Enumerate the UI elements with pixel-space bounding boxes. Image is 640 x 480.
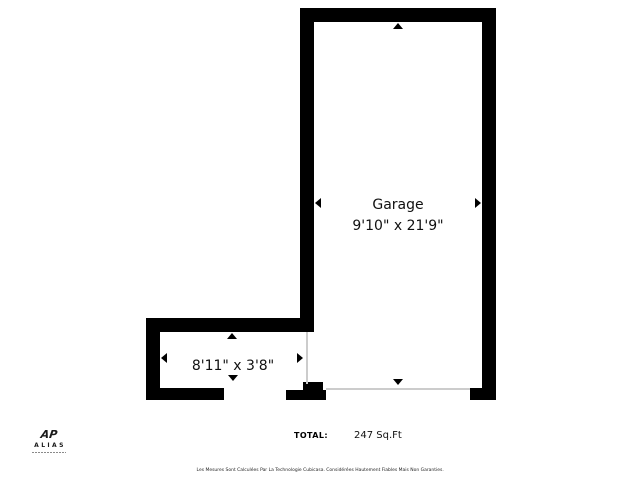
garage-top-wall — [300, 8, 496, 22]
garage-left-wall — [300, 8, 314, 332]
garage-bottom-right-stub-wall — [470, 388, 496, 400]
disclaimer-wrap: Les Mesures Sont Calculées Par La Techno… — [0, 458, 640, 477]
side-room-label-block: 8'11" x 3'8" — [160, 356, 306, 377]
garage-room-dimensions: 9'10" x 21'9" — [300, 216, 496, 237]
garage-door-opening-line — [326, 388, 470, 390]
garage-label-block: Garage 9'10" x 21'9" — [300, 195, 496, 237]
brand-monogram: AP — [28, 429, 70, 441]
brand-name: ALIAS — [29, 442, 69, 450]
garage-dim-arrow-up-icon — [393, 23, 403, 29]
garage-room-name: Garage — [300, 195, 496, 216]
side-room-bottom-wall — [146, 388, 224, 400]
total-row: TOTAL: 247 Sq.Ft — [294, 430, 402, 441]
brand-tagline-line — [32, 452, 66, 453]
side-room-top-wall — [146, 318, 314, 332]
total-value: 247 Sq.Ft — [354, 430, 402, 441]
floorplan-canvas: Garage 9'10" x 21'9" 8'11" x 3'8" TOTAL:… — [0, 0, 640, 480]
disclaimer-text: Les Mesures Sont Calculées Par La Techno… — [196, 467, 443, 472]
total-label: TOTAL: — [294, 431, 328, 440]
brand-logo: AP ALIAS — [29, 429, 69, 453]
side-room-dim-arrow-up-icon — [227, 333, 237, 339]
garage-bottom-left-notch-wall — [303, 382, 323, 400]
side-room-dimensions: 8'11" x 3'8" — [160, 356, 306, 377]
garage-dim-arrow-down-icon — [393, 379, 403, 385]
room-garage-boundary-line — [306, 332, 308, 384]
